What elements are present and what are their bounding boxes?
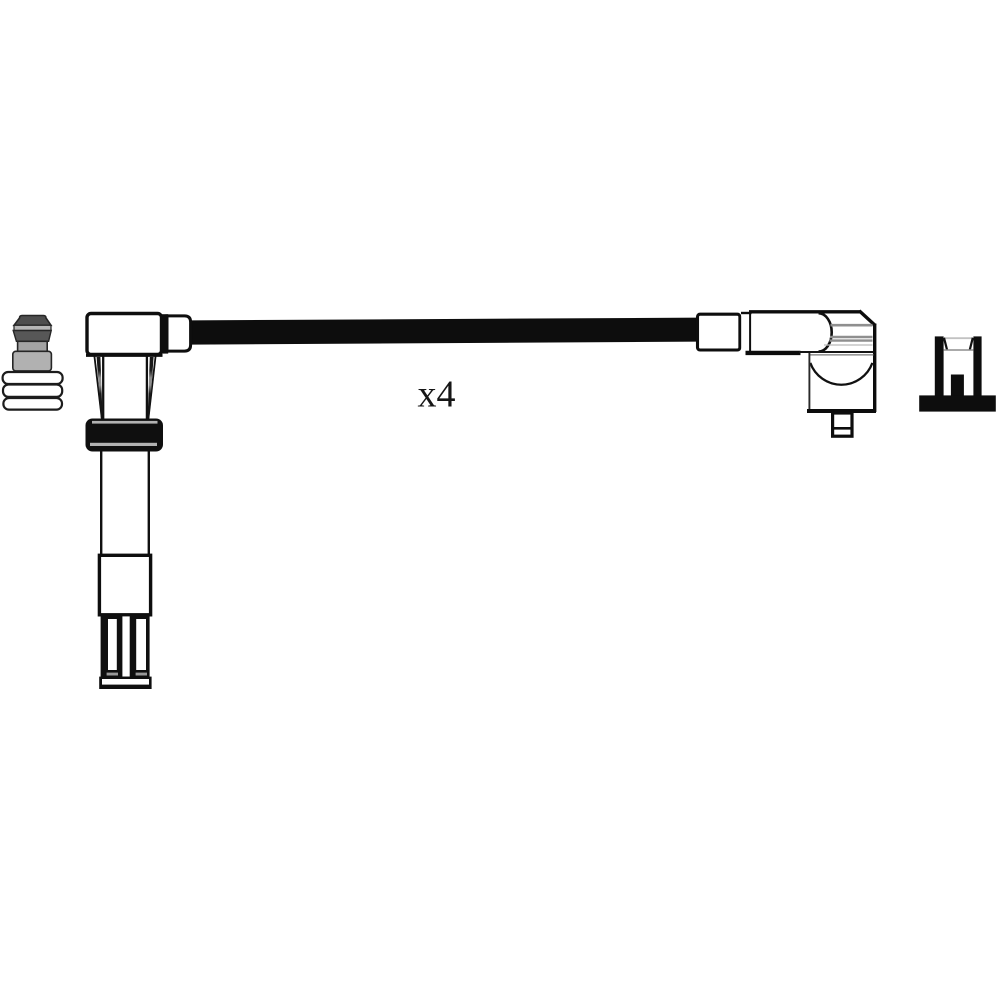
svg-text:x4: x4 bbox=[418, 374, 456, 416]
